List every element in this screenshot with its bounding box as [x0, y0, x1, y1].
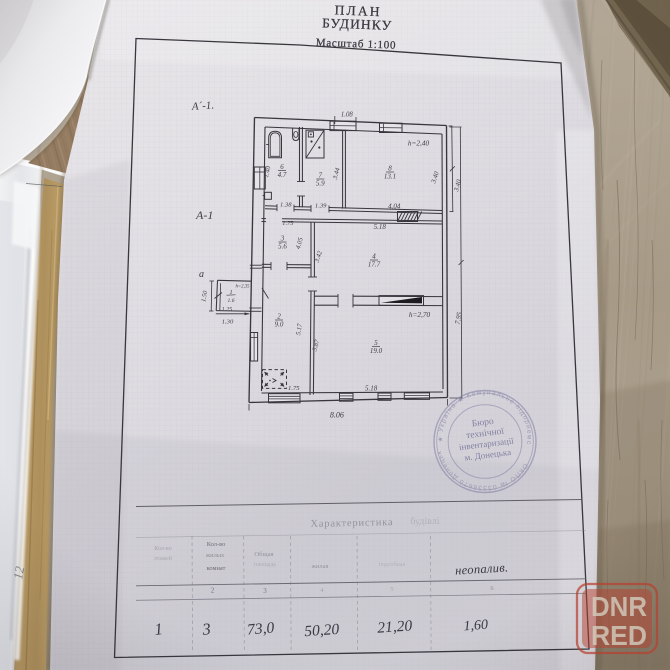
- svg-text:DNR: DNR: [591, 591, 647, 622]
- svg-text:RED: RED: [591, 620, 647, 651]
